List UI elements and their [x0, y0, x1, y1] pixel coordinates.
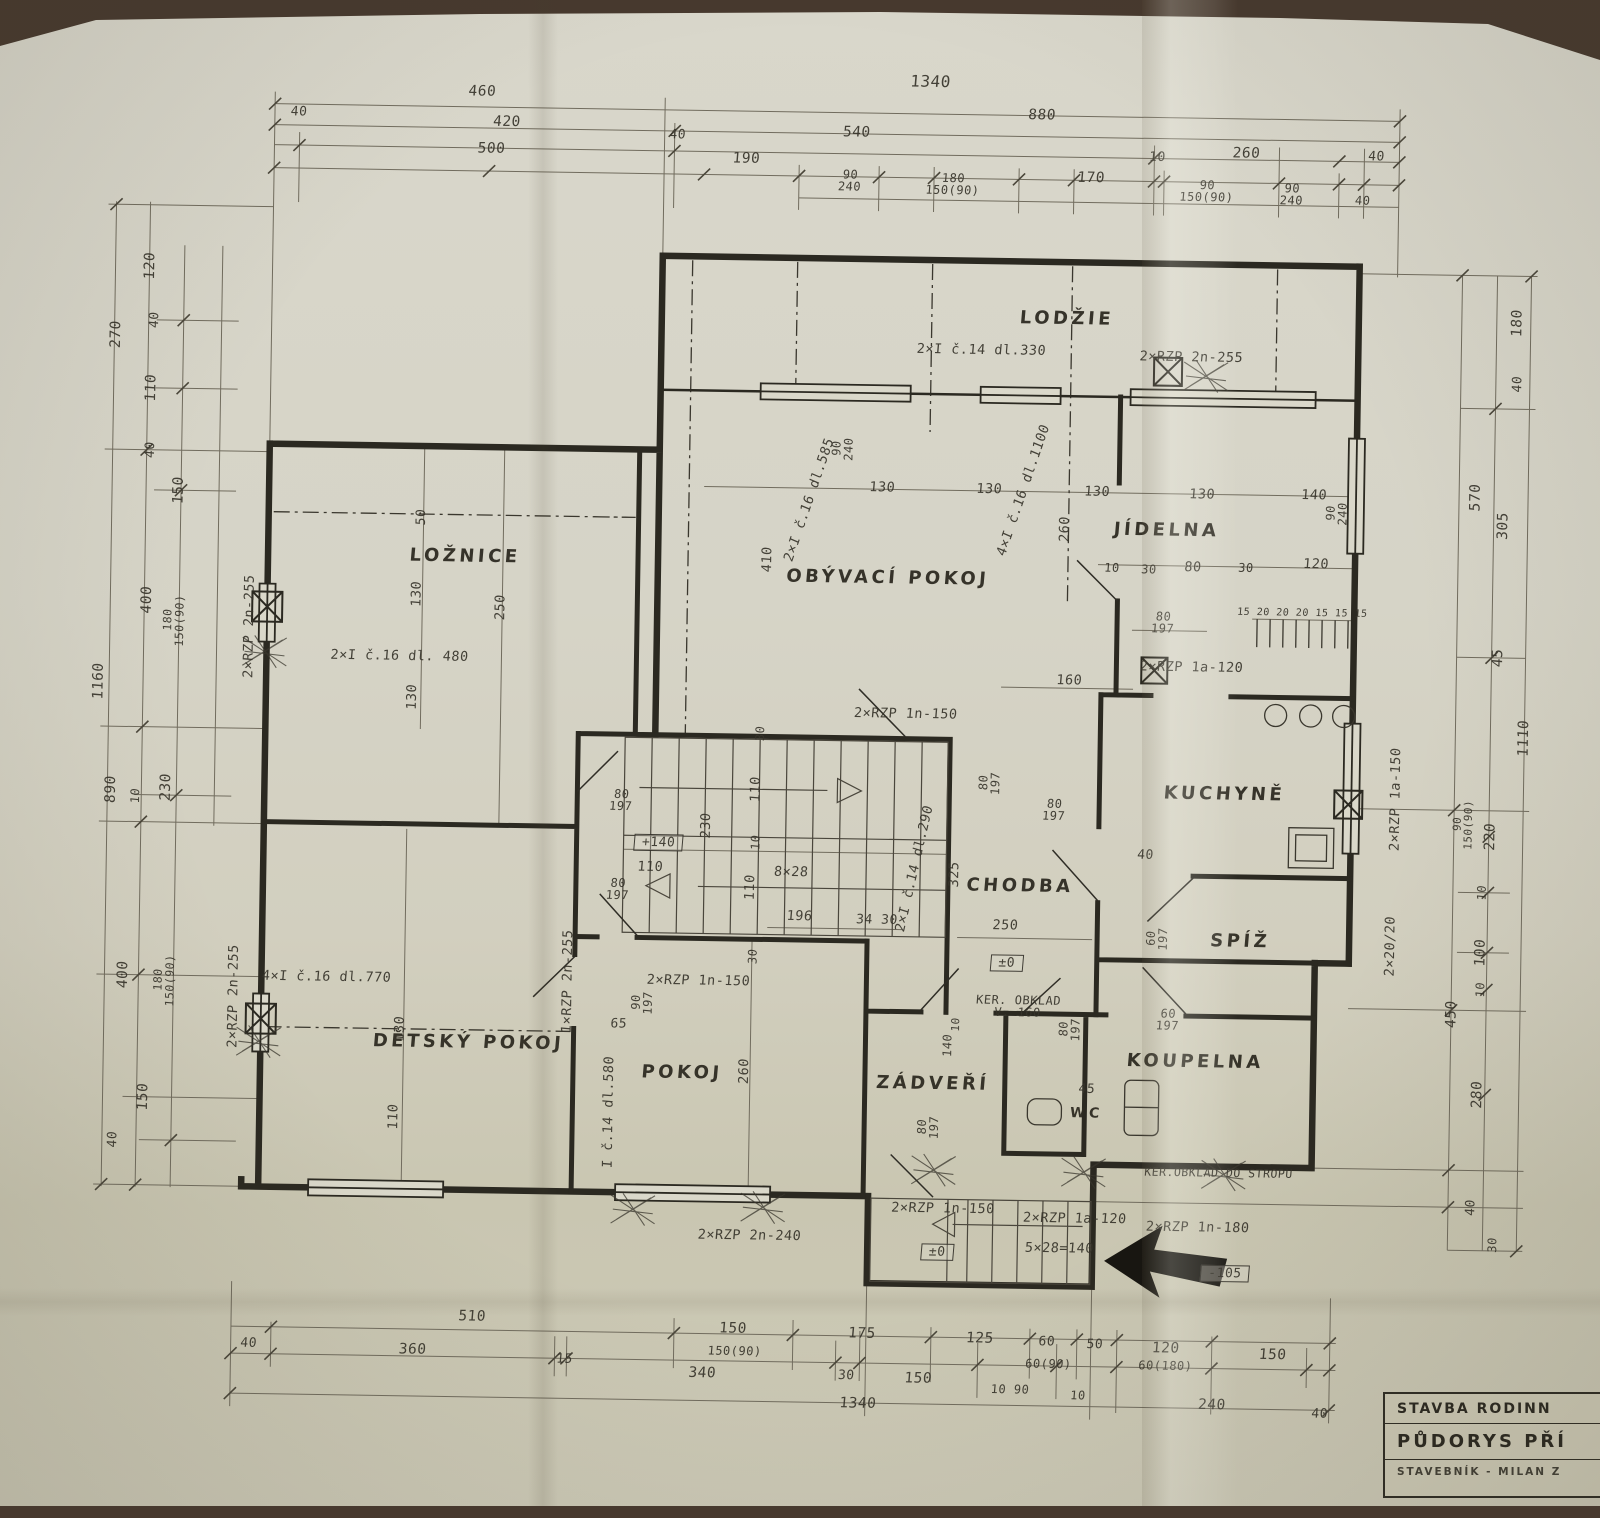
scanned-floorplan-sheet: { "title_block": { "row1": "STAVBA RODIN…	[0, 0, 1600, 1506]
photo-vignette	[0, 0, 1600, 1506]
